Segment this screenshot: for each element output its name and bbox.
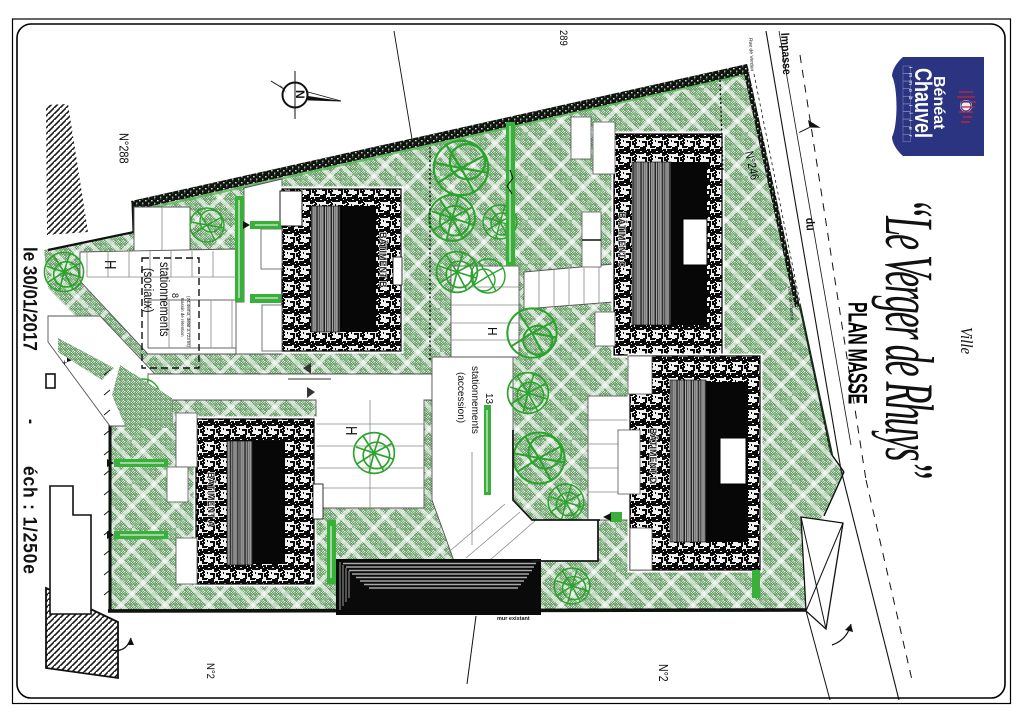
svg-text:Impasse: Impasse — [778, 32, 793, 75]
svg-text:i: i — [907, 67, 913, 68]
svg-text:e: e — [907, 127, 913, 130]
svg-text:N: N — [293, 90, 307, 99]
svg-text:N°288: N°288 — [116, 133, 131, 164]
svg-text:13: 13 — [483, 393, 494, 405]
svg-text:Bassin de rétention: Bassin de rétention — [180, 298, 185, 337]
svg-text:éch : 1/250e: éch : 1/250e — [19, 466, 41, 575]
svg-text:i: i — [907, 105, 913, 106]
svg-text:Ville: Ville — [957, 327, 975, 354]
svg-text:stationnements: stationnements — [469, 366, 480, 434]
svg-text:l: l — [907, 112, 913, 113]
svg-text:r: r — [907, 135, 913, 137]
svg-text:BÂTIMENT B: BÂTIMENT B — [378, 232, 389, 288]
svg-text:le 30/01/2017: le 30/01/2017 — [19, 247, 41, 351]
svg-text:8: 8 — [170, 293, 180, 298]
svg-text:(accession): (accession) — [455, 372, 466, 423]
svg-text:-: - — [21, 419, 43, 424]
svg-text:BÂTIMENT A: BÂTIMENT A — [206, 472, 217, 528]
svg-text:289: 289 — [557, 30, 569, 46]
svg-text:+: + — [62, 358, 67, 368]
svg-text:H: H — [342, 426, 359, 435]
svg-text:(74.46m3, débit 3.723 l/s): (74.46m3, débit 3.723 l/s) — [186, 296, 191, 348]
svg-text:mur existant: mur existant — [497, 616, 530, 622]
svg-text:H: H — [485, 327, 500, 336]
svg-text:i: i — [907, 120, 913, 121]
svg-text:“Le Verger de Rhuys”: “Le Verger de Rhuys” — [871, 198, 947, 478]
svg-text:BÂTIMENT C: BÂTIMENT C — [617, 212, 628, 268]
svg-text:o: o — [907, 89, 913, 92]
svg-text:N°2: N°2 — [656, 664, 669, 682]
svg-text:du: du — [803, 217, 816, 231]
svg-text:H: H — [101, 260, 118, 269]
svg-text:N°2: N°2 — [204, 663, 216, 679]
svg-text:BÂTIMENT D: BÂTIMENT D — [648, 428, 659, 484]
svg-text:(sociaux): (sociaux) — [141, 268, 156, 313]
svg-text:stationnements: stationnements — [157, 262, 172, 337]
svg-text:PLAN MASSE: PLAN MASSE — [842, 302, 872, 404]
svg-text:m: m — [907, 73, 913, 78]
svg-text:m: m — [907, 80, 913, 85]
svg-text:b: b — [907, 96, 913, 99]
